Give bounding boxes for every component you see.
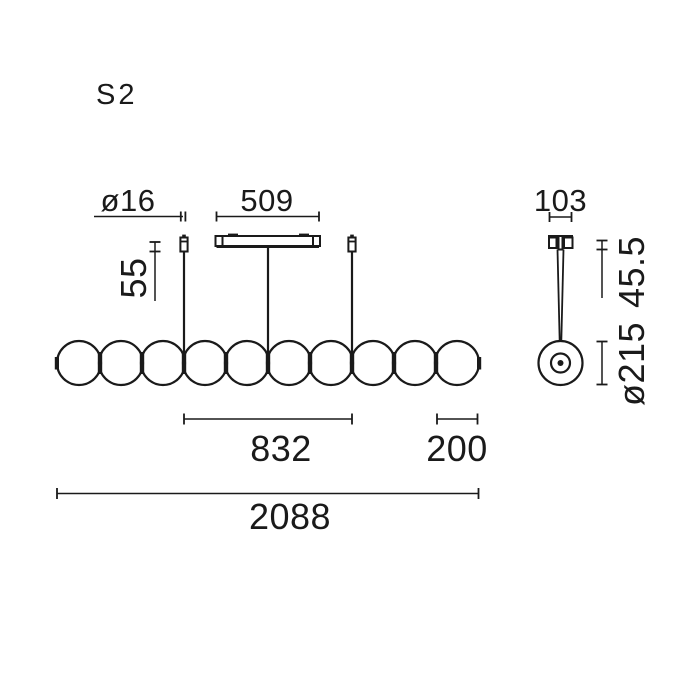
dim-wire-spacing: 832 [184, 414, 352, 470]
dim-suspension-top-label: 55 [113, 257, 154, 298]
dim-wire-spacing-label: 832 [250, 428, 312, 469]
sphere-joint-9 [434, 352, 438, 374]
side-view: 103 45.5 [534, 183, 652, 406]
sphere-joint-2 [140, 352, 144, 374]
suspension-wires [180, 235, 355, 354]
sphere-8 [351, 341, 395, 385]
sphere-joint-4 [224, 352, 228, 374]
end-cap-right [477, 357, 481, 370]
front-view: ø16 509 55 832 [55, 183, 488, 537]
ceiling-grip-right [348, 238, 355, 252]
canopy-front [216, 234, 321, 247]
model-label: S2 [96, 79, 137, 111]
sphere-7 [309, 341, 353, 385]
sphere-10 [435, 341, 479, 385]
sphere-joint-1 [98, 352, 102, 374]
sphere-1 [57, 341, 101, 385]
sphere-joint-7 [350, 352, 354, 374]
sphere-4 [183, 341, 227, 385]
canopy-side-stem [559, 236, 563, 250]
sphere-2 [99, 341, 143, 385]
dim-wire-diameter-label: ø16 [101, 183, 156, 218]
sphere-joint-5 [266, 352, 270, 374]
side-wire-strand-1 [558, 250, 560, 342]
canopy-side-block-right [564, 238, 573, 249]
canopy-mount-tab-right [299, 234, 309, 236]
dim-wire-diameter: ø16 [94, 183, 185, 222]
sphere-side [539, 341, 583, 385]
dim-sphere-diameter: ø215 [597, 322, 653, 406]
sphere-9 [393, 341, 437, 385]
end-cap-left [55, 357, 59, 370]
sphere-side-hub [558, 360, 564, 366]
dim-total-length: 2088 [57, 488, 479, 537]
dim-end-segment-label: 200 [426, 428, 488, 469]
technical-drawing-pendant-lamp: S2 [0, 0, 700, 700]
dim-end-segment: 200 [426, 414, 488, 470]
canopy-side-block-left [549, 238, 557, 249]
canopy-side [548, 236, 573, 250]
dim-suspension-top: 55 [113, 242, 161, 302]
dim-canopy-height-label: 45.5 [611, 236, 652, 308]
dim-canopy-width-label: 509 [240, 183, 293, 218]
canopy-body [216, 236, 321, 246]
side-wire-strand-2 [561, 250, 563, 342]
side-wire [558, 250, 564, 342]
sphere-3 [141, 341, 185, 385]
canopy-mount-tab-left [228, 234, 238, 236]
dim-canopy-width: 509 [217, 183, 320, 222]
dim-canopy-depth: 103 [534, 183, 587, 222]
sphere-6 [267, 341, 311, 385]
dim-sphere-diameter-label: ø215 [611, 322, 652, 406]
sphere-joint-3 [182, 352, 186, 374]
dim-canopy-depth-label: 103 [534, 183, 587, 218]
sphere-joint-6 [308, 352, 312, 374]
ceiling-grip-left [180, 238, 187, 252]
dim-total-length-label: 2088 [249, 496, 331, 537]
dim-canopy-height: 45.5 [597, 236, 653, 308]
sphere-5 [225, 341, 269, 385]
sphere-joint-8 [392, 352, 396, 374]
